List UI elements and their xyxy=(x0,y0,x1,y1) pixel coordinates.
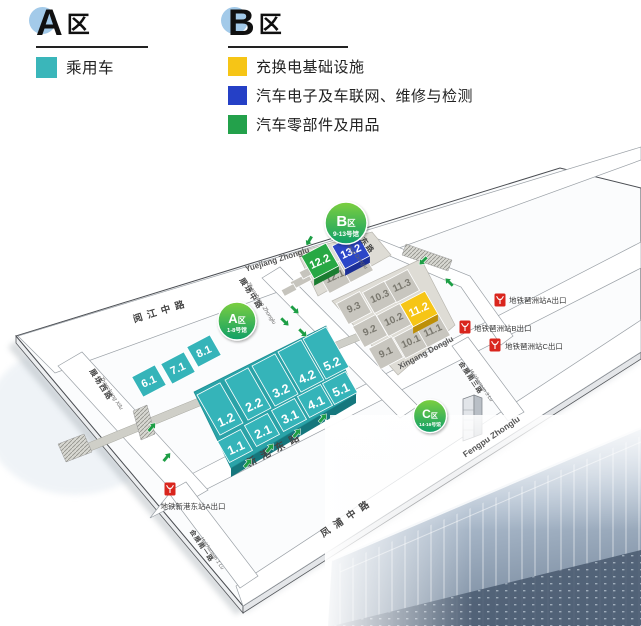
venue-map-page: 9.310.311.39.210.29.110.111.112.113.16.1… xyxy=(0,0,641,626)
zone-badge-c: C区 14-16号馆 xyxy=(414,400,447,433)
zone-b-letter: B xyxy=(228,2,255,43)
metro-icon-pazhou-c xyxy=(490,339,501,352)
legend-label-electronics: 汽车电子及车联网、维修与检测 xyxy=(256,85,473,106)
zone-badge-a: A区 1-8号馆 xyxy=(218,302,256,340)
swatch-electronics xyxy=(228,86,247,105)
legend-zone-a: A区 乘用车 xyxy=(36,4,148,78)
metro-label-xingangdong-a: 地铁新港东站A出口 xyxy=(160,501,225,511)
legend-zone-b: B区 充换电基础设施 汽车电子及车联网、维修与检测 汽车零部件及用品 xyxy=(228,4,473,135)
metro-label-pazhou-a: 地铁琶洲站A出口 xyxy=(509,295,567,305)
metro-icon-pazhou-a xyxy=(495,294,506,307)
metro-label-pazhou-b: 地铁琶洲站B出口 xyxy=(474,323,532,333)
svg-text:14-16号馆: 14-16号馆 xyxy=(419,421,441,428)
zone-a-letter: A xyxy=(36,2,63,43)
legend-item-electronics: 汽车电子及车联网、维修与检测 xyxy=(228,85,473,106)
legend-item-charging-infra: 充换电基础设施 xyxy=(228,56,473,77)
legend-b-title: B区 xyxy=(228,4,473,44)
svg-text:9-13号馆: 9-13号馆 xyxy=(333,229,360,238)
legend-a-title: A区 xyxy=(36,4,148,44)
svg-text:1-8号馆: 1-8号馆 xyxy=(227,326,247,334)
legend-label-passenger-cars: 乘用车 xyxy=(66,56,114,78)
legend-item-parts: 汽车零部件及用品 xyxy=(228,114,473,135)
legend-a-rule xyxy=(36,46,148,48)
legend-label-parts: 汽车零部件及用品 xyxy=(256,114,380,135)
swatch-passenger-cars xyxy=(36,57,57,78)
legend-item-passenger-cars: 乘用车 xyxy=(36,56,148,78)
metro-label-pazhou-c: 地铁琶洲站C出口 xyxy=(505,341,563,351)
metro-icon-pazhou-b xyxy=(460,321,471,334)
metro-icon-xingangdong-a xyxy=(165,483,176,496)
swatch-parts xyxy=(228,115,247,134)
zone-a-suffix: 区 xyxy=(67,11,90,37)
zone-b-suffix: 区 xyxy=(259,11,282,37)
zone-badge-b: B区 9-13号馆 xyxy=(325,202,367,244)
swatch-charging-infra xyxy=(228,57,247,76)
legend-b-rule xyxy=(228,46,348,48)
legend-label-charging-infra: 充换电基础设施 xyxy=(256,56,365,77)
